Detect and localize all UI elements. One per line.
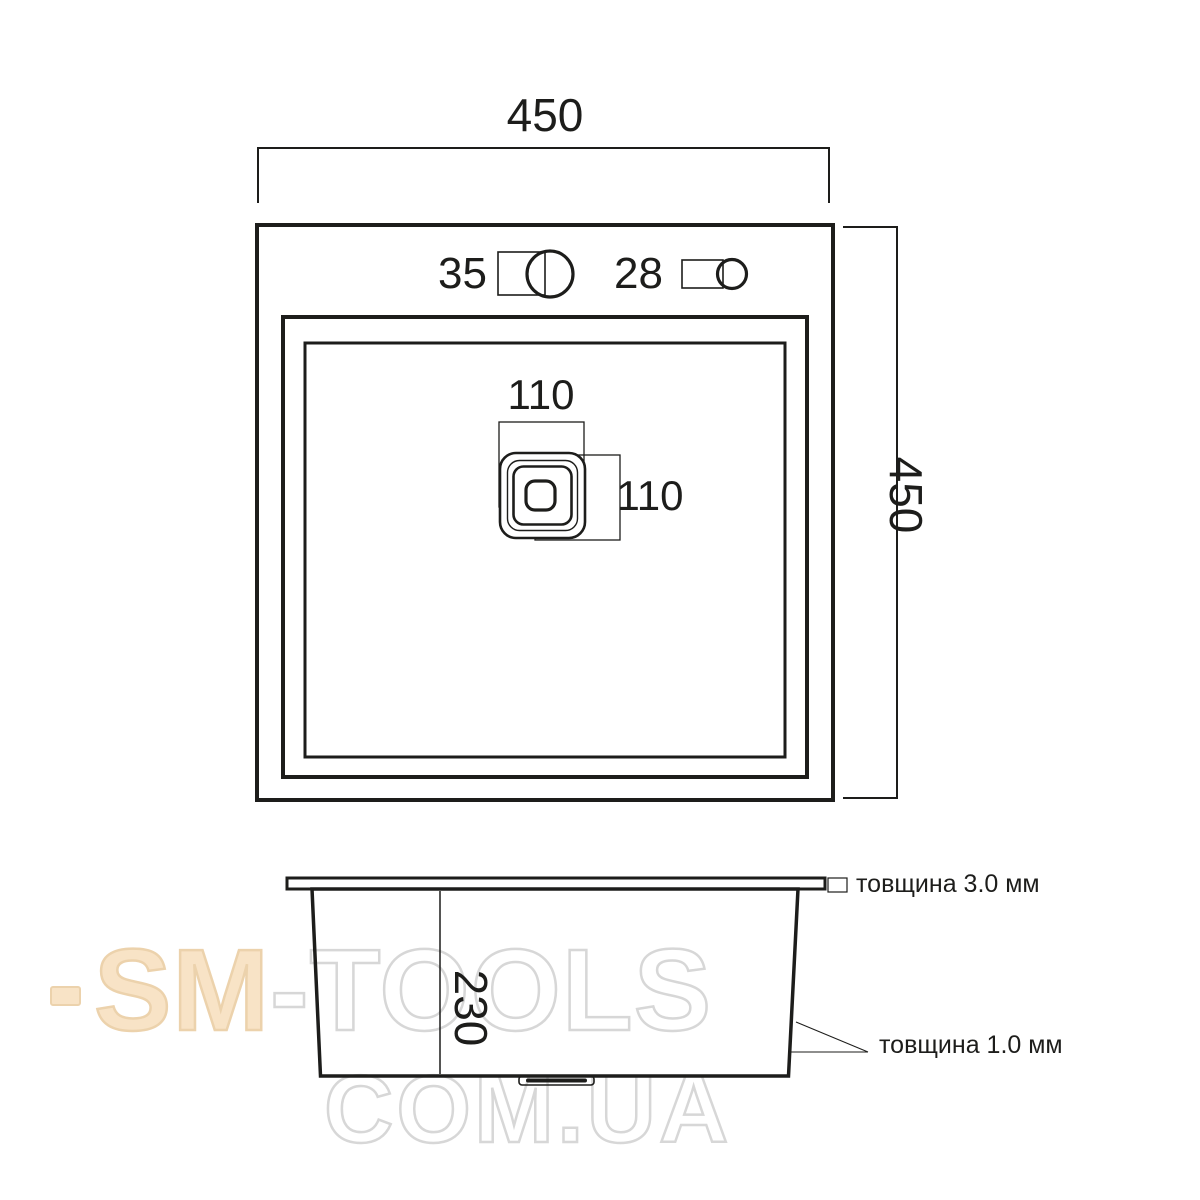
bowl-body: [312, 889, 798, 1076]
side-view: [287, 878, 868, 1085]
wall-thickness-leader-upper: [796, 1022, 868, 1052]
drain-height-dimension: 110: [590, 475, 710, 517]
faucet-hole-square: [498, 252, 545, 295]
top-view: [257, 148, 897, 800]
drain-width-dimension: 110: [471, 374, 611, 416]
top-width-dimension-line: [258, 148, 829, 203]
drawing-canvas: [0, 0, 1200, 1200]
drain-stub-bar: [526, 1079, 587, 1083]
right-height-dimension: 450: [881, 433, 929, 557]
dispenser-hole-circle: [718, 260, 747, 289]
rim-thickness-swatch: [828, 878, 847, 892]
sink-dimension-drawing: SM-TOOLS COM.UA: [0, 0, 1200, 1200]
top-width-dimension: 450: [465, 92, 625, 138]
wall-thickness-note: товщина 1.0 мм: [879, 1032, 1063, 1058]
rim-thickness-note: товщина 3.0 мм: [856, 871, 1040, 897]
depth-dimension: 230: [446, 946, 494, 1070]
dispenser-hole-dimension: 28: [563, 252, 663, 296]
faucet-hole-dimension: 35: [387, 252, 487, 296]
